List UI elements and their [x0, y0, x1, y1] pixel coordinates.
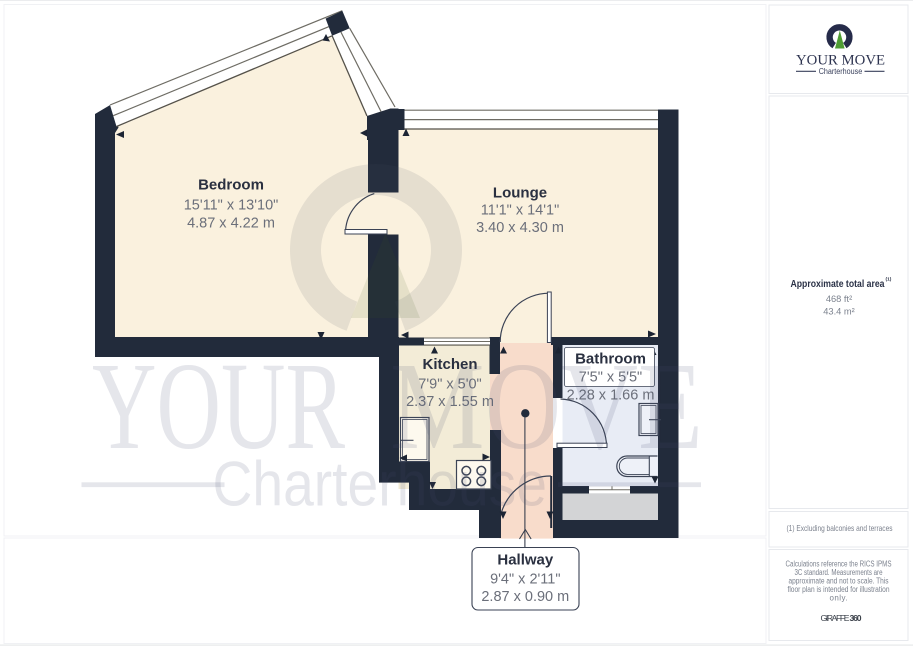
svg-text:Hallway: Hallway	[497, 552, 554, 569]
svg-text:YOUR MOVE: YOUR MOVE	[796, 53, 885, 69]
svg-text:3.40 x 4.30 m: 3.40 x 4.30 m	[476, 220, 564, 236]
svg-text:Lounge: Lounge	[493, 185, 547, 202]
svg-text:15'11" x 13'10": 15'11" x 13'10"	[184, 198, 279, 214]
svg-text:Bedroom: Bedroom	[198, 177, 264, 194]
svg-text:(1): (1)	[886, 277, 892, 283]
svg-text:4.87 x 4.22 m: 4.87 x 4.22 m	[187, 216, 275, 232]
svg-text:468 ft²: 468 ft²	[826, 294, 852, 304]
svg-text:9'4" x 2'11": 9'4" x 2'11"	[490, 572, 560, 588]
svg-text:Charterhouse: Charterhouse	[819, 67, 863, 76]
svg-text:11'1" x 14'1": 11'1" x 14'1"	[481, 203, 559, 219]
svg-text:only.: only.	[830, 594, 848, 603]
svg-text:43.4 m²: 43.4 m²	[823, 307, 855, 317]
svg-text:360: 360	[850, 613, 862, 623]
svg-text:GIRAFFE: GIRAFFE	[821, 613, 850, 623]
svg-text:(1) Excluding balconies and te: (1) Excluding balconies and terraces	[787, 523, 893, 533]
svg-text:Charterhouse: Charterhouse	[213, 450, 548, 520]
svg-text:Approximate total area: Approximate total area	[791, 279, 885, 290]
svg-text:2.87 x 0.90 m: 2.87 x 0.90 m	[481, 589, 569, 605]
